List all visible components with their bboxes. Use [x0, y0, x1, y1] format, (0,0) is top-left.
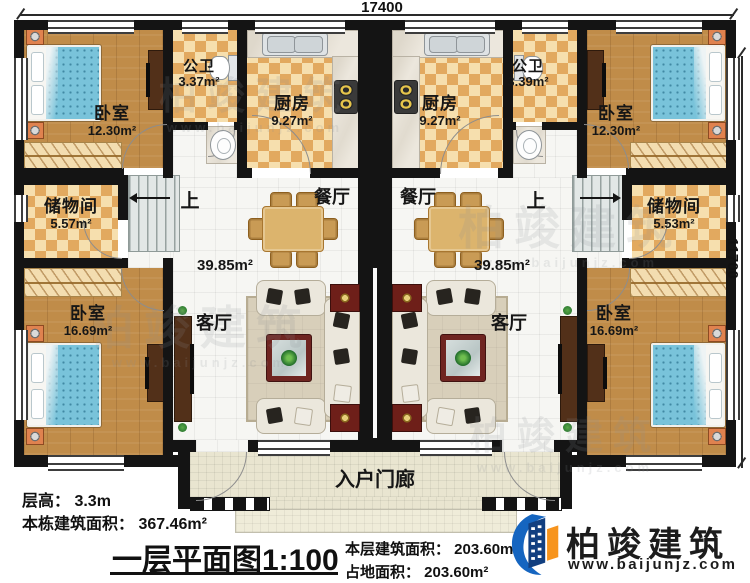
wall	[513, 122, 516, 130]
coffee-table	[266, 334, 312, 382]
sheet-fold	[46, 47, 58, 119]
nightstand	[26, 428, 44, 445]
plant	[281, 350, 297, 366]
porch-step-platform	[235, 509, 517, 533]
sofa-cushion	[294, 288, 311, 305]
floor-area-text: 本层建筑面积： 203.60m²	[345, 538, 518, 559]
sink-bowl	[294, 36, 323, 53]
window	[14, 58, 28, 140]
stair-arrow-head	[613, 193, 621, 203]
wall-seam	[373, 268, 377, 438]
pillow	[709, 353, 722, 383]
room-name: 厨房	[388, 94, 492, 114]
wall	[168, 168, 173, 178]
hall-area-left: 39.85m²	[197, 257, 251, 274]
nightstand	[708, 325, 726, 342]
room-label-living-right: 客厅	[486, 309, 532, 335]
closet	[630, 268, 728, 297]
footprint-area-text: 占地面积： 203.60m²	[345, 561, 488, 582]
washbasin	[516, 130, 542, 160]
kitchen-sink	[424, 32, 490, 56]
floor-plan-page: 17400 11700	[0, 0, 750, 583]
tv	[603, 357, 607, 389]
stair-arrow-head	[129, 193, 137, 203]
sofa-cushion	[266, 288, 283, 305]
dining-table	[428, 206, 490, 252]
wall	[577, 258, 587, 268]
room-label-kitchen-right: 厨房 9.27m²	[388, 94, 492, 128]
porch-wall	[178, 452, 190, 509]
room-area: 9.27m²	[240, 114, 344, 129]
dining-table	[262, 206, 324, 252]
sofa-cushion	[401, 312, 419, 330]
sink-bowl	[456, 36, 485, 53]
plant	[563, 423, 572, 432]
tv	[558, 344, 562, 394]
plant	[178, 423, 187, 432]
bed-blanket	[653, 345, 706, 425]
sofa	[256, 280, 326, 316]
dimension-line-right	[741, 56, 743, 468]
pillow	[31, 52, 44, 82]
tv	[190, 344, 194, 394]
plant	[178, 306, 187, 315]
closet	[630, 142, 728, 170]
window	[726, 58, 740, 140]
window	[420, 440, 492, 456]
window	[48, 455, 124, 471]
sheet-fold	[694, 345, 706, 425]
room-label-bedroom-top-right: 卧室 12.30m²	[566, 104, 666, 138]
sheet-fold	[46, 345, 58, 425]
side-table	[330, 284, 360, 312]
dimension-right-label: 11700	[724, 238, 741, 279]
wall	[622, 258, 736, 268]
room-name: 卧室	[564, 304, 664, 324]
sofa-cushion	[401, 384, 420, 403]
tv	[145, 357, 149, 389]
sofa-cushion	[436, 288, 453, 305]
sofa	[426, 398, 496, 434]
room-name: 卧室	[566, 104, 666, 124]
window	[258, 440, 330, 456]
wall	[234, 122, 237, 130]
door-opening	[196, 440, 248, 452]
bed-pillows	[706, 345, 723, 425]
wall	[163, 268, 173, 455]
wall	[163, 258, 173, 268]
pillow	[709, 85, 722, 115]
dining-chair	[434, 250, 456, 268]
tv-stand	[587, 344, 605, 402]
room-area: 5.57m²	[21, 217, 121, 232]
window	[405, 20, 495, 34]
sofa-long	[392, 298, 428, 418]
stairs-up-label: 上	[524, 186, 548, 213]
door-opening	[502, 440, 554, 452]
room-area: 5.53m²	[624, 217, 724, 232]
sofa-cushion	[401, 348, 418, 365]
sofa-cushion	[464, 288, 481, 305]
stair-arrow	[136, 197, 170, 199]
room-name: 储物间	[624, 197, 724, 217]
room-name: 卧室	[38, 304, 138, 324]
window	[626, 455, 702, 471]
pillow	[31, 353, 44, 383]
brand-site: www.baijunjz.com	[568, 556, 737, 573]
stairs	[128, 175, 180, 252]
dimension-top-label: 17400	[352, 0, 412, 16]
window	[14, 330, 28, 420]
window	[726, 195, 740, 222]
coffee-table	[440, 334, 486, 382]
bed-pillows	[706, 47, 723, 119]
tv-cabinet	[174, 316, 192, 422]
stairs-up-label: 上	[178, 186, 202, 213]
sink-bowl	[429, 36, 458, 53]
stairs	[572, 175, 624, 252]
bed-blanket	[46, 345, 99, 425]
window	[182, 20, 228, 34]
wall	[622, 175, 736, 185]
dining-chair	[270, 250, 292, 268]
tv-cabinet	[587, 50, 604, 110]
wall	[392, 168, 440, 178]
pillow	[31, 85, 44, 115]
room-label-dining-right: 餐厅	[395, 183, 441, 209]
side-table	[392, 404, 422, 432]
nightstand	[708, 122, 726, 139]
sofa-cushion	[294, 407, 313, 426]
wall	[14, 258, 128, 268]
room-area: 9.27m²	[388, 114, 492, 129]
wall	[577, 268, 587, 455]
window	[616, 20, 702, 34]
sofa-long	[324, 298, 360, 418]
side-table	[330, 404, 360, 432]
room-name: 公卫	[498, 58, 558, 75]
nightstand	[708, 28, 726, 45]
room-label-bath-right: 公卫 3.39m²	[498, 58, 558, 90]
wall	[14, 175, 128, 185]
nightstand	[26, 28, 44, 45]
room-label-storage-right: 储物间 5.53m²	[624, 197, 724, 231]
wall	[577, 168, 582, 178]
bed-pillows	[29, 345, 46, 425]
room-label-kitchen-left: 厨房 9.27m²	[240, 94, 344, 128]
room-name: 储物间	[21, 197, 121, 217]
building-area-text: 本栋建筑面积： 367.46m²	[22, 510, 207, 534]
room-label-storage-left: 储物间 5.57m²	[21, 197, 121, 231]
window	[48, 20, 134, 34]
brand-logo-icon	[506, 510, 562, 578]
room-name: 公卫	[169, 58, 229, 75]
dining-chair	[296, 250, 318, 268]
sheet-fold	[694, 47, 706, 119]
closet	[24, 142, 122, 170]
hall-area-right: 39.85m²	[474, 257, 528, 274]
sofa-cushion	[436, 407, 456, 427]
sofa-cushion	[333, 312, 351, 330]
sofa-cushion	[333, 348, 350, 365]
washbasin	[210, 130, 236, 160]
porch-floor	[268, 497, 482, 509]
nightstand	[26, 122, 44, 139]
bed	[26, 342, 102, 428]
wall	[173, 122, 208, 130]
room-area: 16.69m²	[38, 324, 138, 339]
pillow	[31, 389, 44, 419]
pillow	[709, 389, 722, 419]
room-label-bath-left: 公卫 3.37m²	[169, 58, 229, 90]
plant	[455, 350, 471, 366]
title-underline	[110, 572, 338, 575]
room-label-porch: 入户门廊	[327, 463, 423, 492]
room-label-bedroom-bottom-left: 卧室 16.69m²	[38, 304, 138, 338]
brand-logo-svg	[506, 510, 562, 578]
room-label-bedroom-top-left: 卧室 12.30m²	[62, 104, 162, 138]
room-label-living-left: 客厅	[191, 309, 237, 335]
pillow	[709, 52, 722, 82]
room-area: 3.37m²	[169, 75, 229, 90]
room-area: 3.39m²	[498, 75, 558, 90]
kitchen-sink	[262, 32, 328, 56]
room-label-dining-left: 餐厅	[309, 183, 355, 209]
sofa-cushion	[333, 384, 352, 403]
room-name: 卧室	[62, 104, 162, 124]
sofa	[256, 398, 326, 434]
tv	[146, 63, 150, 97]
nightstand	[708, 428, 726, 445]
window	[522, 20, 568, 34]
wall	[310, 168, 358, 178]
room-name: 厨房	[240, 94, 344, 114]
closet	[24, 268, 122, 297]
room-area: 12.30m²	[62, 124, 162, 139]
window	[726, 330, 740, 420]
tv	[602, 63, 606, 97]
room-area: 16.69m²	[564, 324, 664, 339]
floor-height-text: 层高： 3.3m	[22, 487, 111, 511]
sofa-cushion	[266, 407, 283, 424]
wall	[503, 30, 513, 178]
sofa-cushion	[464, 407, 481, 424]
bed	[650, 342, 726, 428]
room-label-bedroom-bottom-right: 卧室 16.69m²	[564, 304, 664, 338]
room-area: 12.30m²	[566, 124, 666, 139]
side-table	[392, 284, 422, 312]
stair-arrow	[580, 197, 614, 199]
sink-bowl	[267, 36, 296, 53]
window	[255, 20, 345, 34]
bed-pillows	[29, 47, 46, 119]
